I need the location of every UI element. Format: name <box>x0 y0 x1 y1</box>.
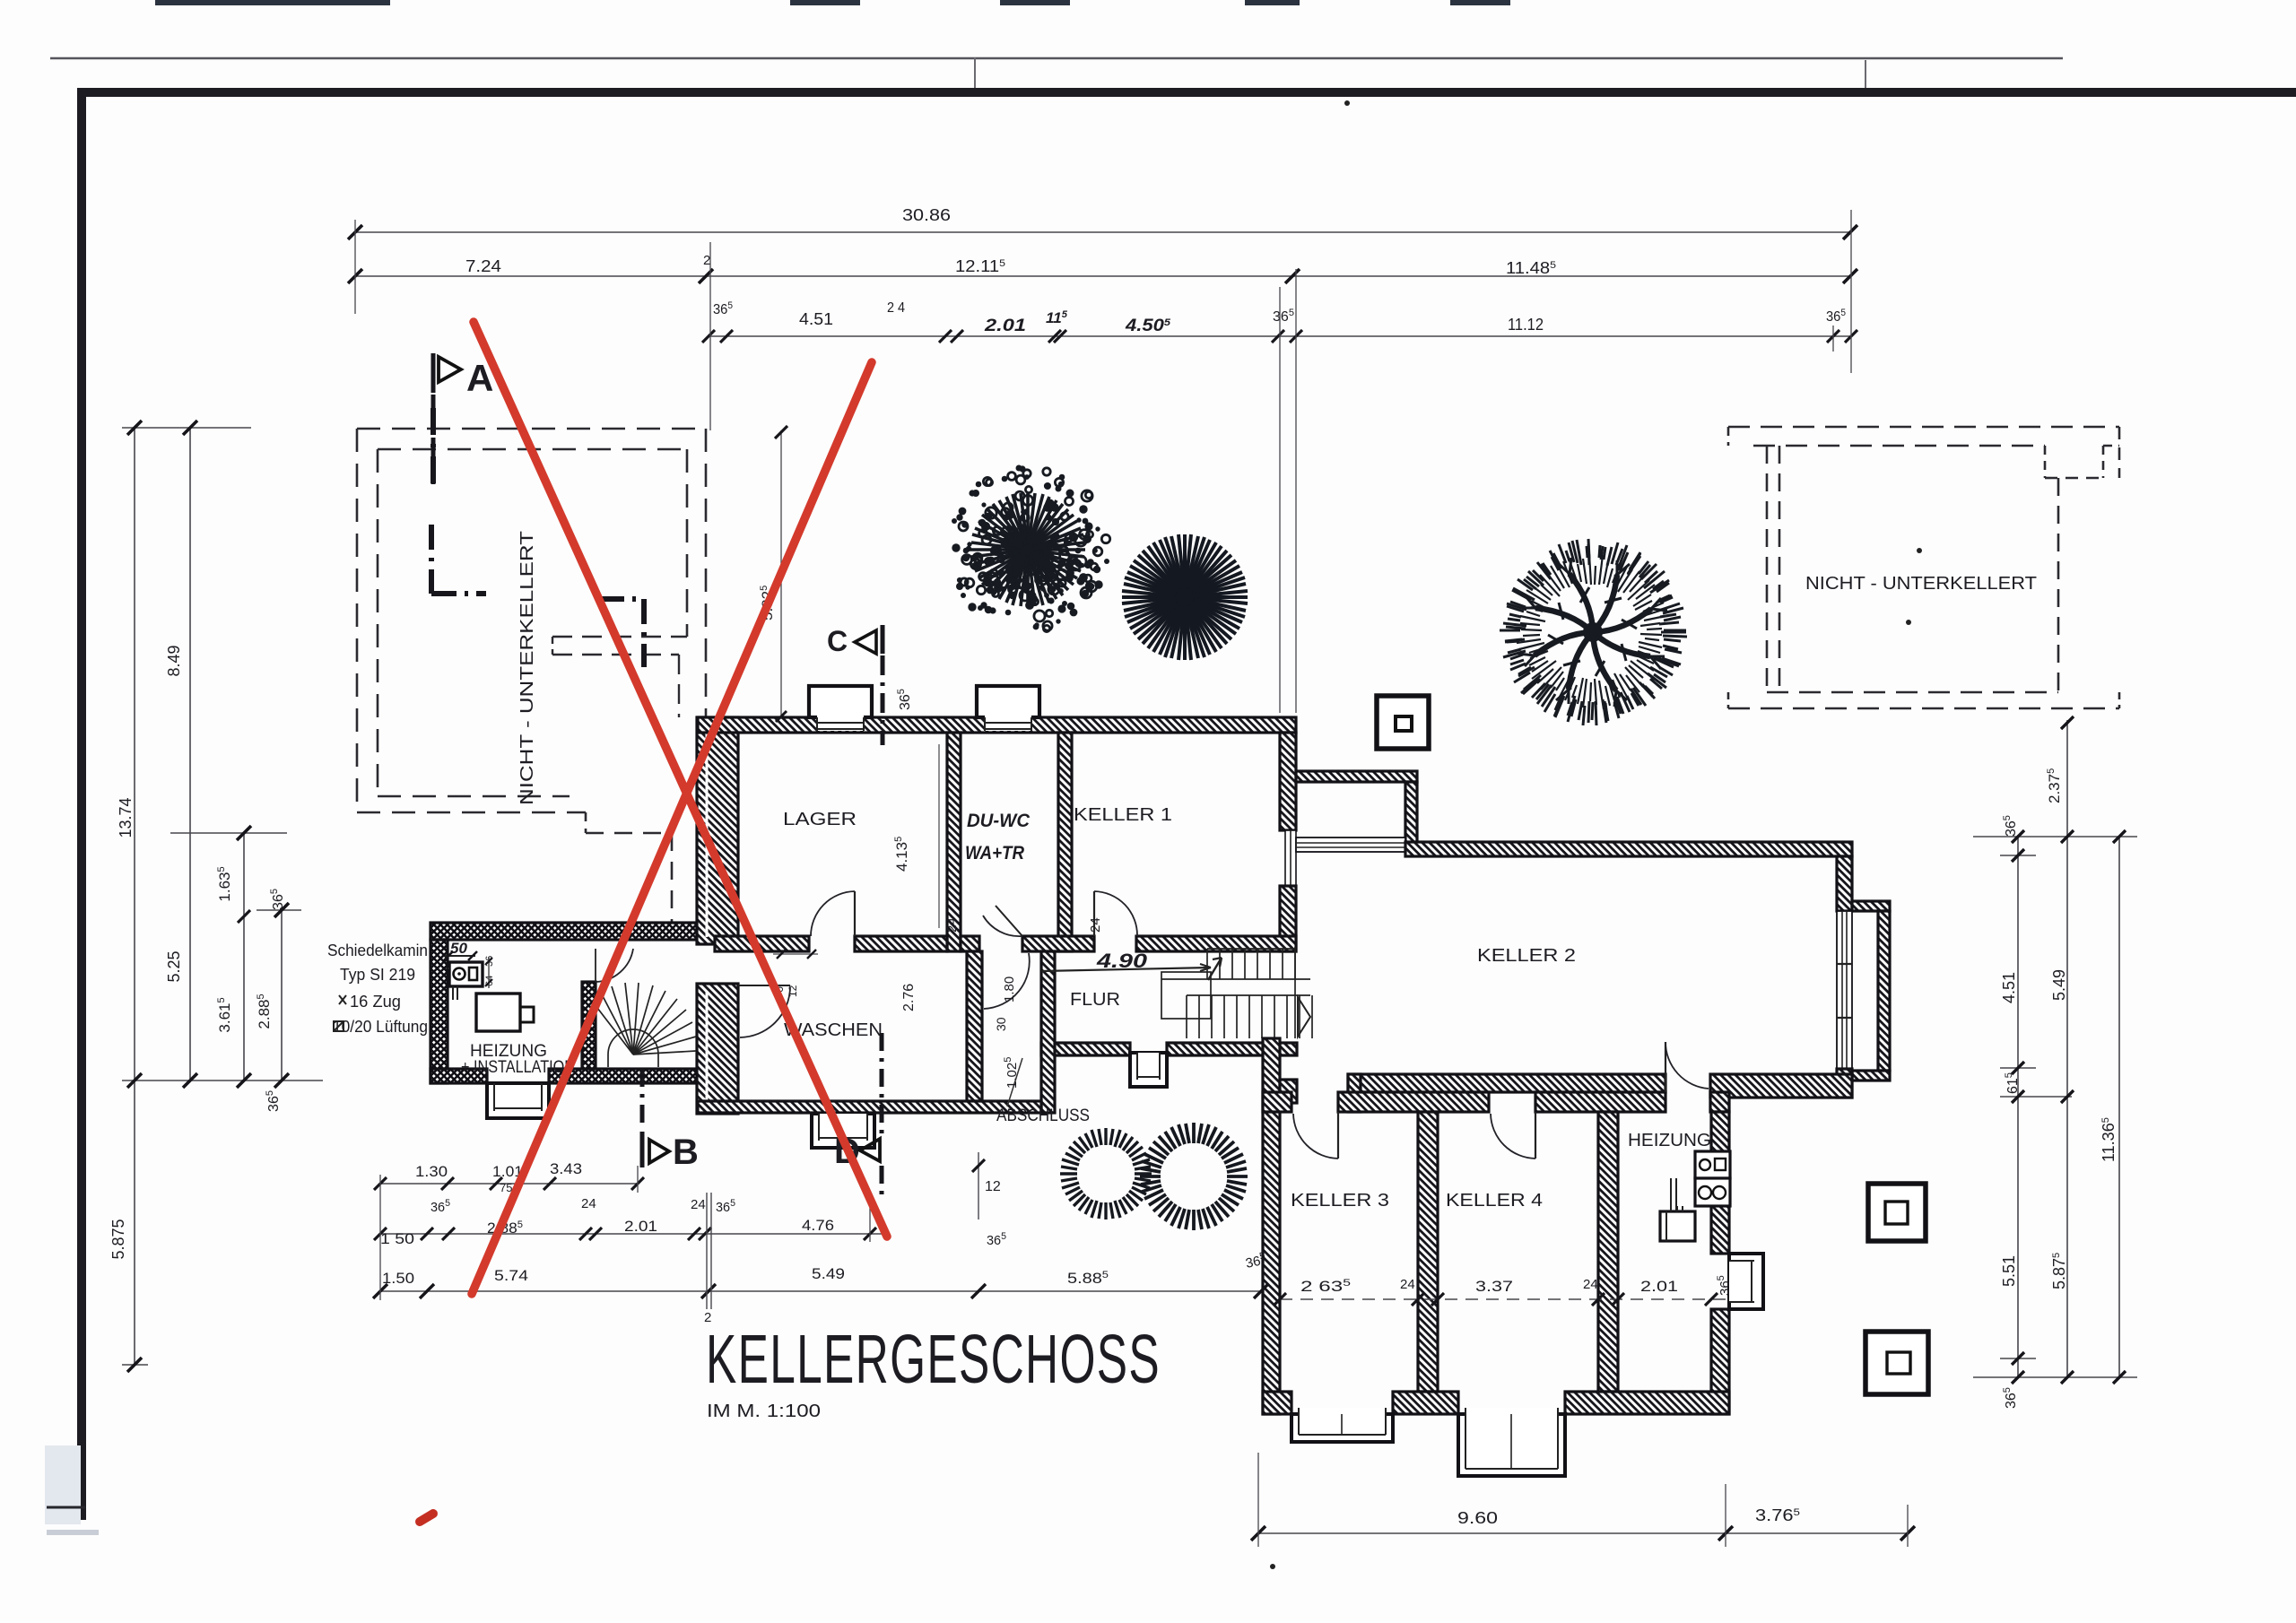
svg-text:WA+TR: WA+TR <box>965 843 1025 864</box>
svg-text:C: C <box>827 625 848 657</box>
svg-text:FLUR: FLUR <box>1070 990 1120 1010</box>
svg-text:50: 50 <box>450 940 467 957</box>
svg-text:5.49: 5.49 <box>812 1265 845 1282</box>
svg-text:5.74: 5.74 <box>494 1267 528 1284</box>
svg-text:5.25: 5.25 <box>165 950 183 982</box>
svg-text:12: 12 <box>787 985 799 997</box>
svg-text:12: 12 <box>985 1179 1001 1194</box>
svg-text:16 Zug: 16 Zug <box>350 993 401 1011</box>
svg-text:1 50: 1 50 <box>380 1230 414 1247</box>
svg-text:24: 24 <box>1583 1277 1598 1292</box>
svg-text:3.37: 3.37 <box>1475 1278 1513 1295</box>
svg-text:11.365: 11.365 <box>2100 1117 2118 1162</box>
svg-text:LAGER: LAGER <box>783 810 857 829</box>
svg-text:Typ SI 219: Typ SI 219 <box>340 966 415 984</box>
svg-text:2 4: 2 4 <box>887 300 905 316</box>
svg-text:5.875: 5.875 <box>2050 1253 2068 1289</box>
svg-text:10/20 Lüftung: 10/20 Lüftung <box>333 1018 428 1036</box>
svg-text:4.51: 4.51 <box>2000 972 2018 1003</box>
svg-text:24: 24 <box>691 1197 706 1212</box>
svg-text:KELLER 1: KELLER 1 <box>1074 805 1172 825</box>
svg-text:3.43: 3.43 <box>550 1160 582 1177</box>
svg-text:KELLER 2: KELLER 2 <box>1477 946 1576 966</box>
svg-text:KELLER 3: KELLER 3 <box>1291 1191 1389 1211</box>
svg-text:ABSCHLUSS: ABSCHLUSS <box>996 1107 1090 1125</box>
svg-text:1.30: 1.30 <box>415 1163 448 1180</box>
svg-text:4.51: 4.51 <box>799 310 833 328</box>
svg-text:24: 24 <box>581 1196 596 1211</box>
svg-text:24: 24 <box>1400 1277 1415 1292</box>
svg-text:11.12: 11.12 <box>1508 316 1544 334</box>
svg-text:KELLERGESCHOSS: KELLERGESCHOSS <box>706 1321 1161 1398</box>
svg-text:3.765: 3.765 <box>1755 1506 1800 1524</box>
svg-text:2: 2 <box>703 253 710 268</box>
svg-text:4.76: 4.76 <box>802 1217 834 1234</box>
svg-text:5.875: 5.875 <box>109 1219 127 1259</box>
svg-text:75: 75 <box>500 1181 512 1194</box>
svg-text:KELLER 4: KELLER 4 <box>1446 1191 1543 1211</box>
svg-text:HEIZUNG: HEIZUNG <box>1628 1131 1711 1150</box>
svg-text:1.80: 1.80 <box>1002 976 1017 1002</box>
svg-text:Schiedelkamin: Schiedelkamin <box>327 942 428 959</box>
svg-text:DU-WC: DU-WC <box>967 811 1031 831</box>
svg-text:11.485: 11.485 <box>1506 259 1556 277</box>
svg-text:2.01: 2.01 <box>624 1218 657 1235</box>
svg-text:13.74: 13.74 <box>117 797 135 838</box>
svg-text:2.76: 2.76 <box>901 984 917 1011</box>
svg-text:IM M. 1:100: IM M. 1:100 <box>707 1402 821 1421</box>
svg-text:30: 30 <box>994 1017 1008 1031</box>
svg-text:5.51: 5.51 <box>2000 1255 2018 1287</box>
svg-text:2.01: 2.01 <box>984 317 1026 335</box>
svg-text:1.50: 1.50 <box>382 1270 414 1287</box>
svg-text:24: 24 <box>944 917 960 933</box>
svg-text:NICHT - UNTERKELLERT: NICHT - UNTERKELLERT <box>517 531 537 805</box>
svg-text:2.01: 2.01 <box>1640 1278 1678 1295</box>
svg-text:B: B <box>673 1133 699 1172</box>
svg-text:+ INSTALLATION: + INSTALLATION <box>461 1058 575 1077</box>
svg-text:12.115: 12.115 <box>955 257 1005 275</box>
svg-text:24: 24 <box>1088 917 1103 933</box>
svg-text:9.60: 9.60 <box>1457 1509 1498 1527</box>
svg-text:5.49: 5.49 <box>2050 969 2068 1001</box>
svg-text:8.49: 8.49 <box>165 645 183 676</box>
svg-text:30.86: 30.86 <box>902 206 951 224</box>
svg-text:7.24: 7.24 <box>465 257 501 275</box>
svg-text:NICHT - UNTERKELLERT: NICHT - UNTERKELLERT <box>1805 574 2037 594</box>
